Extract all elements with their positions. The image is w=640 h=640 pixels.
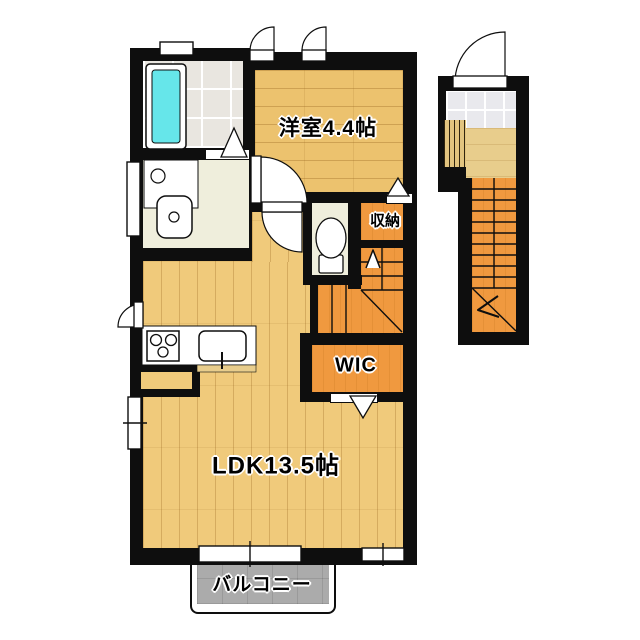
toilet (316, 218, 346, 273)
stairs-down-arrow (478, 296, 499, 317)
washroom-window (127, 162, 140, 236)
floor-plan: 洋室4.4帖 LDK13.5帖 WIC 収納 バルコニー (0, 0, 640, 640)
room-label-wic: WIC (335, 355, 377, 378)
room-label-western-room: 洋室4.4帖 (279, 112, 377, 142)
external-stair-treads (472, 178, 516, 331)
folding-door-marker-bath (221, 128, 247, 157)
room-label-ldk: LDK13.5帖 (212, 446, 340, 481)
door-swing-kitchen-side (118, 302, 143, 328)
door-swing-ldk (262, 202, 302, 252)
door-marker-wic (350, 396, 376, 418)
casement-window-left (250, 27, 274, 61)
entrance-door-swing (453, 32, 507, 88)
kitchen-stove (147, 331, 179, 361)
stairs-up-arrow (366, 250, 380, 268)
fixtures-overlay (0, 0, 640, 640)
bathtub (146, 64, 186, 149)
casement-window-right (302, 27, 326, 61)
room-label-storage: 収納 (370, 210, 400, 231)
door-marker-storage (387, 178, 409, 196)
bath-window (160, 42, 193, 55)
vanity-sink (157, 196, 192, 238)
door-swing-western-room (251, 156, 307, 203)
room-label-balcony: バルコニー (212, 570, 312, 597)
